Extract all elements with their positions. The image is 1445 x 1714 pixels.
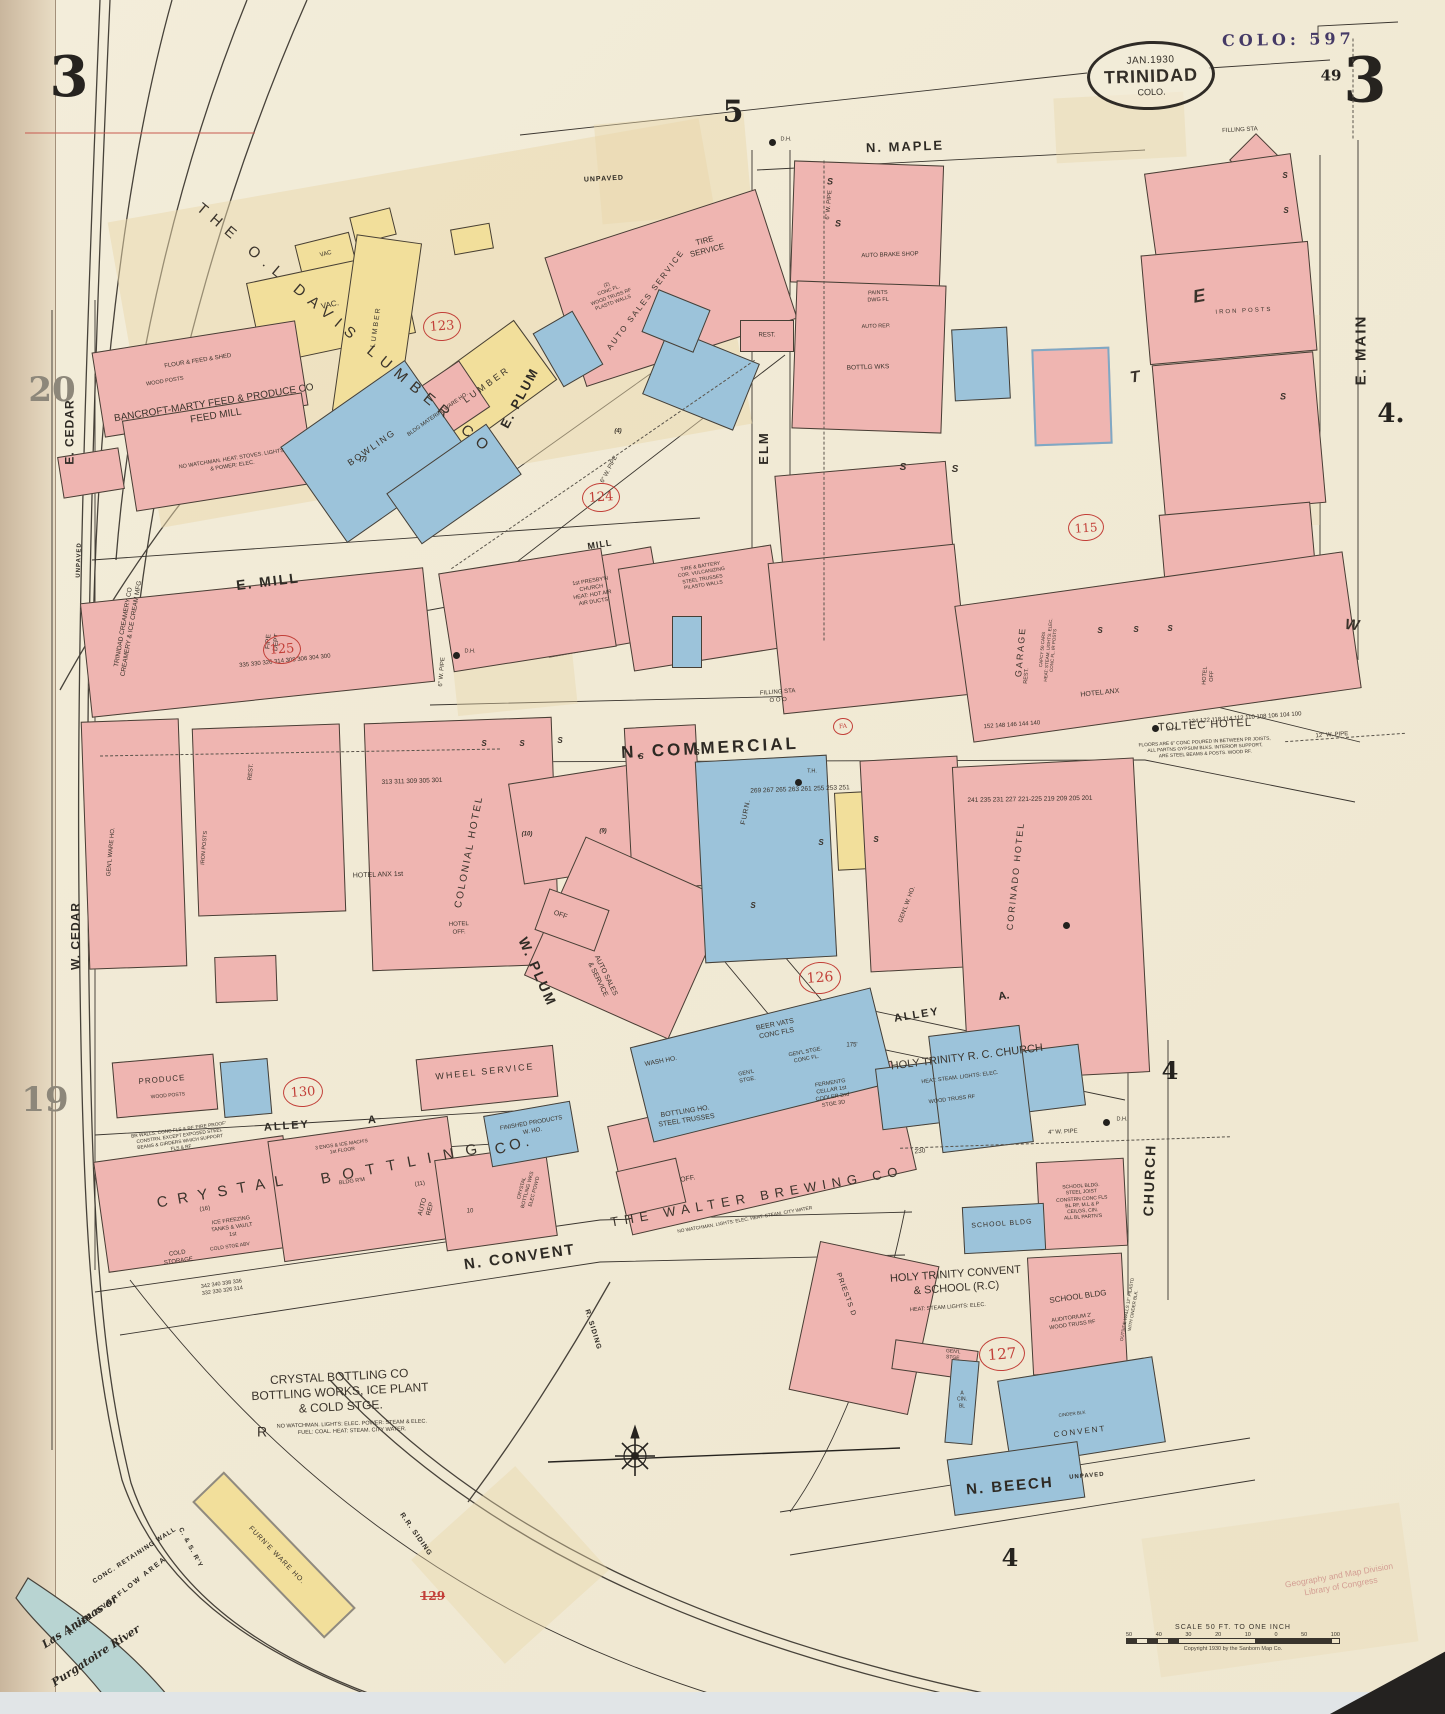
block-letter: S [873, 835, 878, 845]
building [220, 1058, 273, 1118]
business-label: 230 [914, 1148, 925, 1157]
water-pipe-line [824, 161, 825, 641]
block-letter: W [1344, 616, 1360, 636]
business-label: (16) [199, 1206, 211, 1215]
building [768, 544, 971, 715]
business-label: SCHOOL BLDG. STEEL JOIST CONSTRN CONC FL… [1055, 1182, 1109, 1223]
business-label: REST. [1023, 668, 1031, 684]
building [1031, 347, 1112, 447]
scale-tick: 0 [1274, 1632, 1277, 1638]
sanborn-map-sheet: N. MAPLEE. PLUMELME. MAINE. CEDARW. CEDA… [0, 0, 1445, 1714]
sheet-city: TRINIDAD [1104, 64, 1199, 88]
scan-corner-shadow [1330, 1650, 1445, 1714]
sheet-ref-number: 3 [1343, 41, 1386, 119]
compass-rose [548, 1426, 900, 1476]
business-label: FERMENTG CELLAR 1st COOLER 2nd STGE 3D [813, 1078, 851, 1110]
business-label: HOTEL OFF [1201, 666, 1216, 685]
building [81, 718, 188, 969]
hydrant-dot [1063, 922, 1070, 929]
block-letter: S [900, 462, 907, 475]
street-label: CHURCH [1140, 1143, 1160, 1216]
scale-ruler [1126, 1638, 1340, 1644]
business-label: CRYSTAL BOTTLING CO BOTTLING WORKS, ICE … [250, 1365, 429, 1419]
business-label: 175' [846, 1042, 857, 1050]
block-letter: S [519, 739, 524, 749]
scale-tick: 50 [1126, 1632, 1132, 1638]
business-label: 4" W. PIPE [1048, 1128, 1078, 1137]
sheet-ref-number: 4 [1002, 1543, 1019, 1573]
street-label: A. [997, 989, 1010, 1004]
sheet-ref-number: 19 [21, 1079, 68, 1122]
business-label: BOTTLG WKS [847, 363, 890, 373]
street-label: UNPAVED [76, 542, 85, 578]
sheet-ref-number: 4. [1377, 398, 1404, 431]
business-label: 10 [467, 1208, 474, 1216]
scale-tick: 30 [1185, 1632, 1191, 1638]
building [214, 955, 278, 1003]
block-letter: S [1133, 625, 1138, 635]
block-letter: (10) [522, 831, 533, 839]
sheet-ref-number: 20 [28, 369, 75, 412]
sheet-ref-number: 3 [50, 42, 89, 112]
block-letter: (9) [599, 828, 606, 836]
street-label: ELM [756, 431, 772, 464]
block-letter: S [835, 218, 841, 229]
scale-tick: 40 [1156, 1632, 1162, 1638]
sheet-ref-number: 5 [723, 93, 744, 131]
scale-segment [1169, 1639, 1179, 1643]
water-pipe-line [1353, 39, 1354, 139]
scale-title: SCALE 50 FT. TO ONE INCH [1118, 1624, 1348, 1631]
scale-tick: 50 [1301, 1632, 1307, 1638]
business-label: HOTEL OFF. [449, 921, 470, 937]
sheet-state: COLO. [1137, 86, 1165, 97]
business-label: AUTO REP. [861, 323, 890, 331]
street-label: W. CEDAR [69, 902, 84, 970]
business-label: D.H. [781, 137, 792, 144]
business-label: GEN'L STGE [945, 1348, 961, 1362]
business-label: R [257, 1423, 267, 1441]
hydrant-dot [1152, 725, 1159, 732]
business-label: PAINTS DWG FL [867, 290, 889, 304]
building [1141, 241, 1318, 365]
scale-segment [1158, 1639, 1169, 1643]
block-letter: (7) [359, 456, 366, 464]
scale-segment [1127, 1639, 1137, 1643]
scale-tick: 100 [1331, 1632, 1340, 1638]
scale-segment [1256, 1639, 1332, 1643]
index-stamp: COLO: 597 [1222, 29, 1355, 50]
business-label: (11) [414, 1181, 425, 1190]
block-letter: S [694, 748, 699, 758]
scale-segment [1148, 1639, 1158, 1643]
street-label: E. MAIN [1353, 315, 1372, 386]
business-label: REST. [248, 763, 257, 781]
block-letter: S [827, 176, 833, 187]
scale-tick: 10 [1245, 1632, 1251, 1638]
building [1152, 351, 1327, 517]
block-letter: S [1097, 626, 1102, 636]
street-label: N. MAPLE [866, 138, 945, 157]
block-letter: S [1283, 206, 1288, 216]
scale-bar: SCALE 50 FT. TO ONE INCH 504030201005010… [1118, 1624, 1348, 1652]
block-letter: S [481, 739, 486, 749]
street-label: A [368, 1114, 377, 1128]
business-label: T.H. [807, 769, 817, 776]
block-letter: S [952, 464, 959, 477]
struck-number: 129 [420, 1589, 445, 1603]
business-label: HOTEL ANX 1st [353, 871, 404, 882]
block-letter: S [557, 736, 562, 746]
building [672, 616, 702, 668]
hydrant-dot [453, 652, 460, 659]
business-label: FILLING STA O O O [760, 688, 797, 705]
business-label: REST. [758, 332, 775, 340]
business-label: A CIN. BL [957, 1391, 967, 1410]
scale-tick: 20 [1215, 1632, 1221, 1638]
block-letter: S [1167, 624, 1172, 634]
block-letter: S [1280, 391, 1286, 402]
building [790, 160, 944, 287]
hydrant-dot [1103, 1119, 1110, 1126]
scan-backing [0, 1692, 1445, 1714]
scale-segment [1137, 1639, 1148, 1643]
block-letter: S [818, 838, 823, 848]
building [112, 1054, 218, 1119]
block-letter: (4) [614, 428, 621, 436]
copyright-line: Copyright 1930 by the Sanborn Map Co. [1118, 1646, 1348, 1652]
hydrant-dot [769, 139, 776, 146]
sheet-ref-number: 49 [1321, 67, 1342, 86]
hydrant-dot [795, 779, 802, 786]
sheet-ref-number: 4 [1162, 1056, 1179, 1086]
business-label: D.H. [1117, 1117, 1128, 1124]
business-label: D.H. [465, 649, 476, 656]
business-label: D.H. [1167, 727, 1178, 734]
block-letter: S [638, 752, 643, 762]
block-letter: S [1282, 171, 1287, 181]
building [951, 327, 1011, 402]
block-letter: S [750, 901, 755, 911]
scale-segment [1179, 1639, 1256, 1643]
